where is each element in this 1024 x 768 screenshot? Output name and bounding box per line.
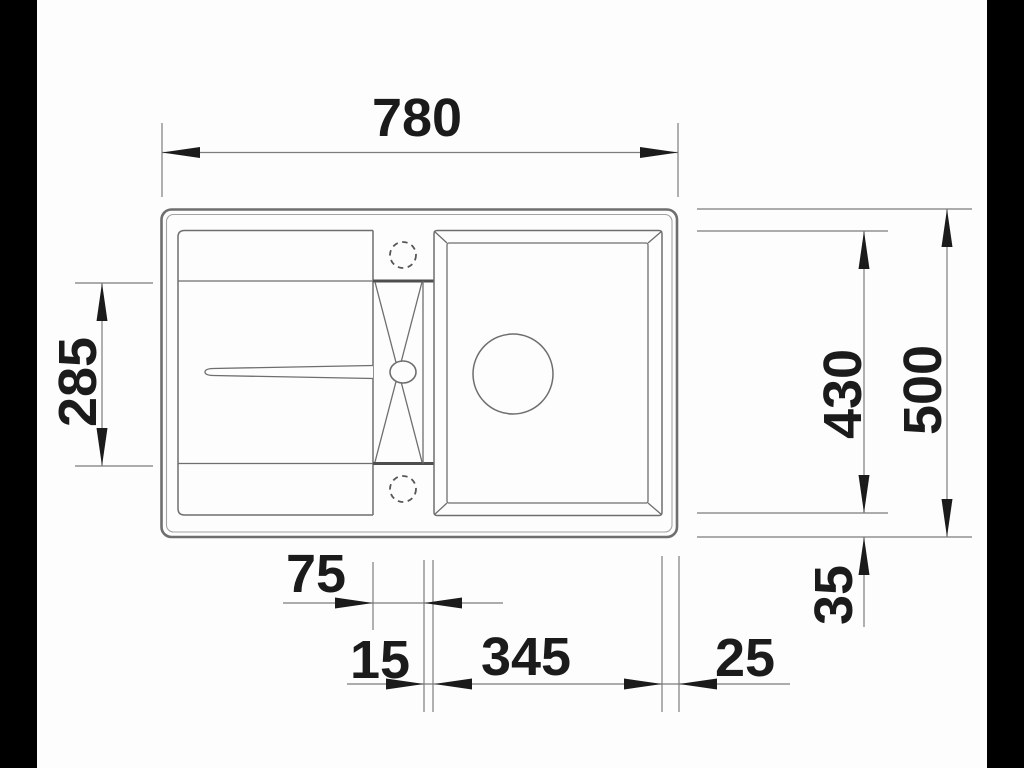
arrow-left-icon — [679, 679, 717, 690]
dimension-label-15: 15 — [350, 630, 410, 690]
arrow-down-icon — [942, 499, 953, 537]
dimension-bottom-chain: 15 345 25 — [347, 627, 790, 690]
tap-hole-bottom-icon — [390, 476, 416, 502]
dimension-label-35: 35 — [804, 565, 864, 625]
dimension-tap-ledge-width: 75 — [283, 544, 503, 609]
arrow-left-icon — [434, 679, 472, 690]
bowl — [434, 231, 662, 516]
bowl-bevel-bottom-left — [434, 503, 447, 515]
tap-ledge — [373, 242, 434, 502]
tap-hole-top-icon — [390, 242, 416, 268]
arrow-down-icon — [859, 475, 870, 513]
arrow-up-icon — [942, 209, 953, 247]
arrow-right-icon — [640, 147, 678, 158]
arrow-left-icon — [424, 598, 462, 609]
dimension-bottom-margin: 35 — [804, 537, 870, 627]
arrow-up-icon — [97, 283, 108, 321]
dimension-label-75: 75 — [286, 544, 346, 604]
bowl-outer-outline — [434, 231, 662, 516]
bowl-inner-outline — [447, 243, 648, 503]
dimension-label-780: 780 — [372, 88, 462, 148]
bowl-bevel-top-left — [434, 231, 447, 243]
drain-hole — [473, 334, 553, 414]
arrow-left-icon — [162, 147, 200, 158]
dimension-overall-width: 780 — [162, 88, 678, 197]
drainboard — [178, 231, 373, 516]
arrow-up-icon — [859, 231, 870, 269]
dimension-drainer-depth: 285 — [48, 283, 153, 466]
remote-drain-knob — [390, 361, 416, 383]
dimension-label-285: 285 — [48, 337, 108, 427]
dimension-label-345: 345 — [481, 627, 571, 687]
dimension-label-430: 430 — [813, 349, 873, 439]
bowl-bevel-top-right — [648, 231, 662, 243]
dimension-label-500: 500 — [893, 345, 953, 435]
sink-technical-drawing: 780 285 430 500 — [0, 0, 1024, 768]
sink-body — [162, 210, 678, 538]
bowl-bevel-bottom-right — [648, 503, 662, 515]
arrow-down-icon — [97, 428, 108, 466]
dimension-bowl-offset-depth: 430 — [697, 231, 888, 513]
arrow-right-icon — [624, 679, 662, 690]
drainboard-groove — [205, 366, 373, 379]
dimension-label-25: 25 — [715, 628, 775, 688]
drawing-canvas: 780 285 430 500 — [0, 0, 1024, 768]
